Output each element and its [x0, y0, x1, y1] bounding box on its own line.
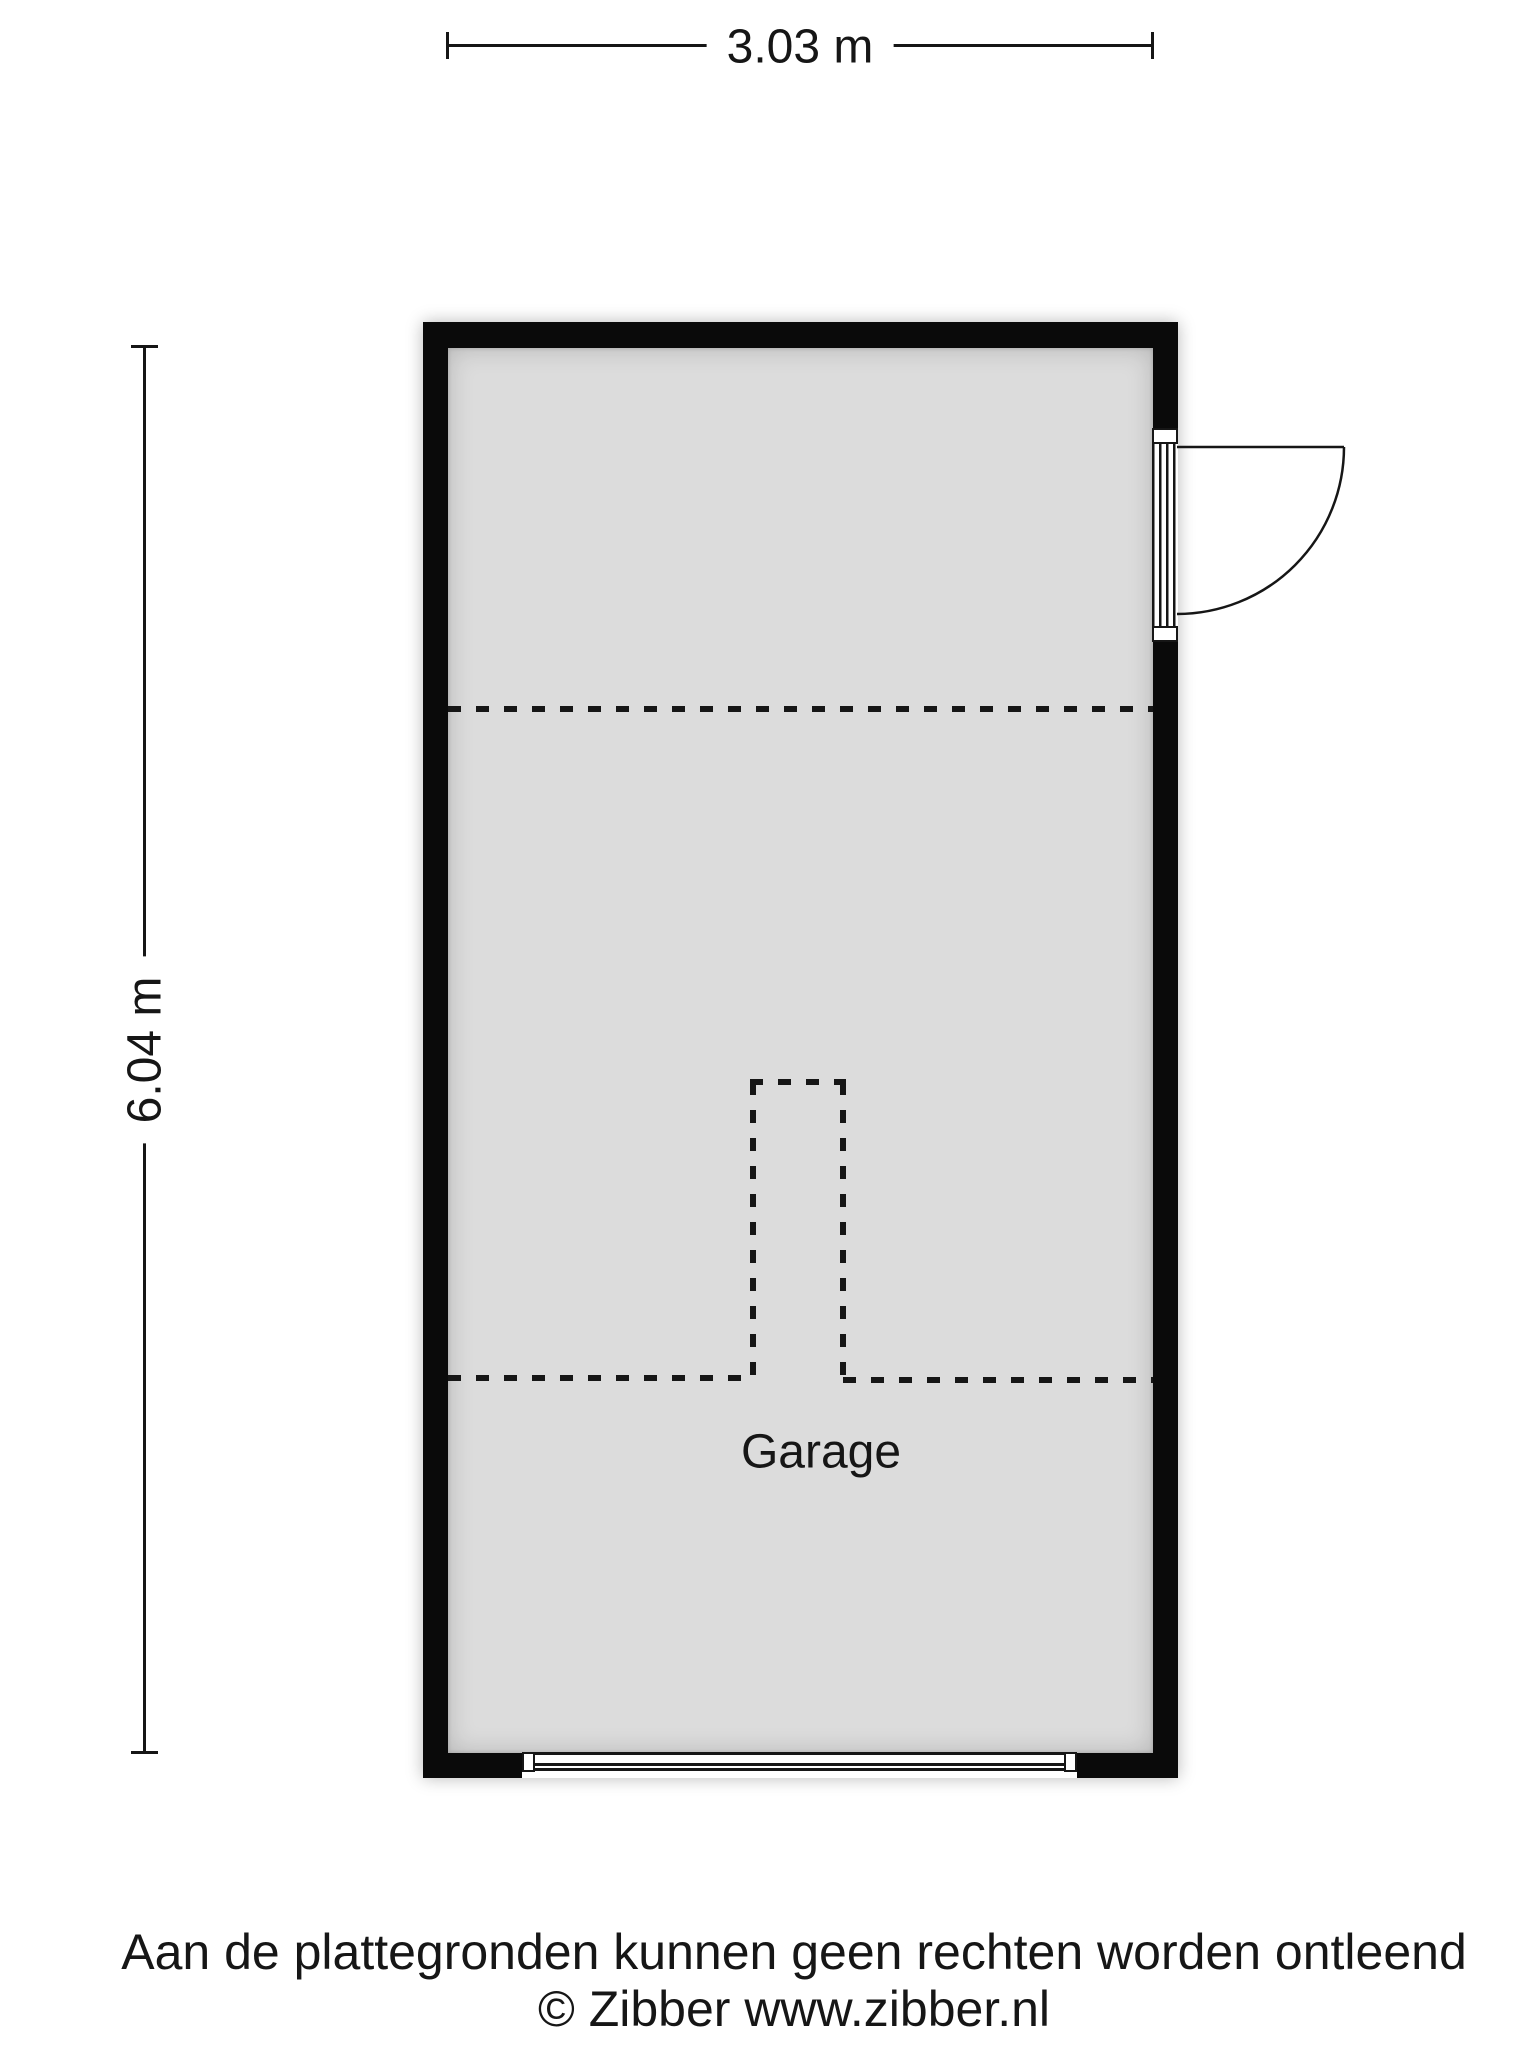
- footer-copyright: © Zibber www.zibber.nl: [121, 1981, 1467, 2038]
- dimension-tick-bottom: [131, 1751, 158, 1754]
- door-swing-icon: [1172, 441, 1350, 619]
- dimension-tick-right: [1151, 32, 1154, 59]
- dashed-recess-right: [840, 1082, 846, 1378]
- dimension-height-label: 6.04 m: [118, 957, 173, 1144]
- garage-door-frame-left: [522, 1752, 535, 1772]
- floorplan-page: { "dimensions": { "width_label": "3.03 m…: [0, 0, 1536, 2048]
- garage-door-icon: [522, 1752, 1077, 1778]
- dimension-tick-top: [131, 345, 158, 348]
- room-label: Garage: [741, 1425, 901, 1480]
- dashed-line-lower-left: [448, 1375, 753, 1381]
- footer: Aan de plattegronden kunnen geen rechten…: [121, 1924, 1467, 2038]
- garage-door-panel: [535, 1752, 1064, 1771]
- door-frame-bottom: [1152, 626, 1178, 642]
- dimension-tick-left: [446, 32, 449, 59]
- garage-outline-walls: [423, 322, 1178, 1778]
- footer-disclaimer: Aan de plattegronden kunnen geen rechten…: [121, 1924, 1467, 1981]
- dimension-width-label: 3.03 m: [707, 20, 894, 75]
- dashed-ceiling-line: [448, 706, 1153, 712]
- dashed-line-lower-right: [843, 1377, 1153, 1383]
- dashed-recess-top: [750, 1079, 846, 1085]
- garage-floor: [448, 348, 1153, 1753]
- garage-door-frame-right: [1064, 1752, 1077, 1772]
- dashed-recess-left: [750, 1082, 756, 1378]
